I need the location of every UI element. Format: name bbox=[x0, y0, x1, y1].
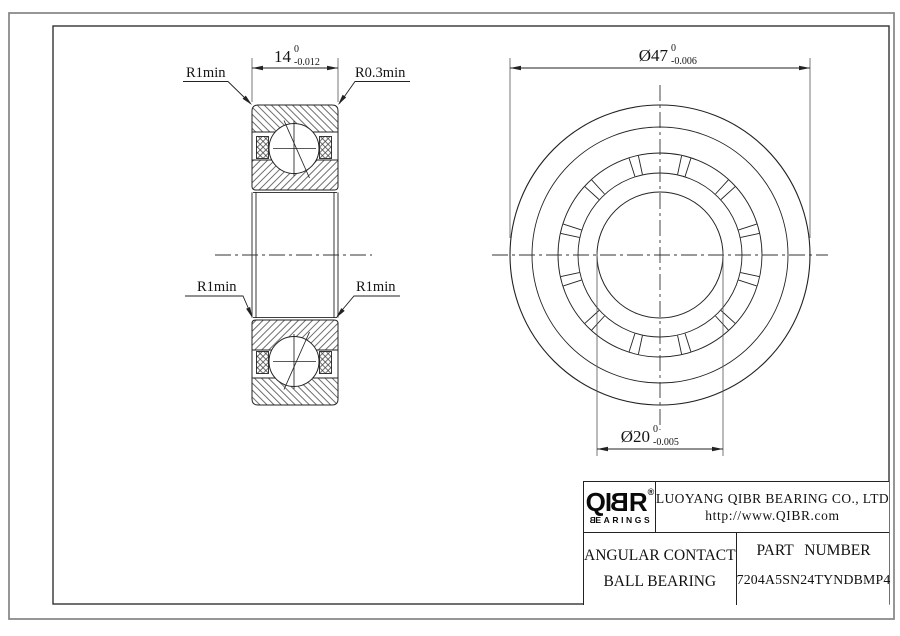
logo-text: QI bbox=[586, 490, 611, 514]
bearing-section-view bbox=[215, 105, 372, 405]
width-dimension: 14 0 -0.012 bbox=[252, 44, 338, 102]
title-block-detail-row: ANGULAR CONTACT BALL BEARING PART NUMBER… bbox=[584, 533, 889, 605]
product-line1: ANGULAR CONTACT bbox=[584, 543, 736, 569]
arrowhead bbox=[712, 447, 723, 451]
part-number-value: 7204A5SN24TYNDBMP4 bbox=[737, 572, 891, 588]
radius-labels: R1min R0.3min R1min R1min bbox=[183, 65, 410, 318]
bearing-front-view bbox=[492, 85, 828, 430]
part-number-label: PART NUMBER bbox=[756, 542, 870, 560]
arrowhead bbox=[510, 66, 521, 70]
drawing-sheet: 14 0 -0.012 Ø47 0 -0.006 Ø20 0 -0.005 R1… bbox=[0, 0, 900, 636]
width-dim-tol-lower: -0.012 bbox=[294, 57, 320, 68]
company-cell: LUOYANG QIBR BEARING CO., LTD http://www… bbox=[656, 482, 889, 532]
radius-label-top-left: R1min bbox=[186, 65, 226, 81]
product-type-cell: ANGULAR CONTACT BALL BEARING bbox=[584, 533, 737, 605]
arrowhead bbox=[252, 66, 263, 70]
bore-dim-tol-lower: -0.005 bbox=[653, 437, 679, 448]
radius-label-mid-left: R1min bbox=[197, 279, 237, 295]
od-dim-tol-lower: -0.006 bbox=[671, 56, 697, 67]
title-block-header-row: QIBR® BEARINGS LUOYANG QIBR BEARING CO.,… bbox=[584, 482, 889, 533]
logo-text: R bbox=[629, 490, 647, 514]
qibr-logo: QIBR® bbox=[586, 490, 654, 514]
company-website: http://www.QIBR.com bbox=[705, 507, 839, 524]
bore-dim-tol-upper: 0 bbox=[653, 424, 658, 435]
arrowhead bbox=[327, 66, 338, 70]
product-line2: BALL BEARING bbox=[603, 569, 716, 595]
title-block: QIBR® BEARINGS LUOYANG QIBR BEARING CO.,… bbox=[583, 481, 889, 605]
logo-subtext-mirrored-b: B bbox=[587, 515, 596, 525]
radius-label-mid-right: R1min bbox=[356, 279, 396, 295]
part-number-cell: PART NUMBER 7204A5SN24TYNDBMP4 bbox=[737, 533, 891, 605]
logo-cell: QIBR® BEARINGS bbox=[584, 482, 656, 532]
arrowhead bbox=[799, 66, 810, 70]
width-dim-tol-upper: 0 bbox=[294, 44, 299, 55]
od-dim-tol-upper: 0 bbox=[671, 43, 676, 54]
registered-mark: ® bbox=[648, 488, 654, 497]
bore-dim-value: Ø20 bbox=[621, 427, 650, 446]
width-dim-value: 14 bbox=[274, 47, 292, 66]
arrowhead bbox=[597, 447, 608, 451]
od-dim-value: Ø47 bbox=[639, 46, 669, 65]
radius-label-top-right: R0.3min bbox=[355, 65, 406, 81]
logo-text-mirrored-b: B bbox=[611, 490, 629, 514]
company-name: LUOYANG QIBR BEARING CO., LTD bbox=[656, 490, 889, 507]
